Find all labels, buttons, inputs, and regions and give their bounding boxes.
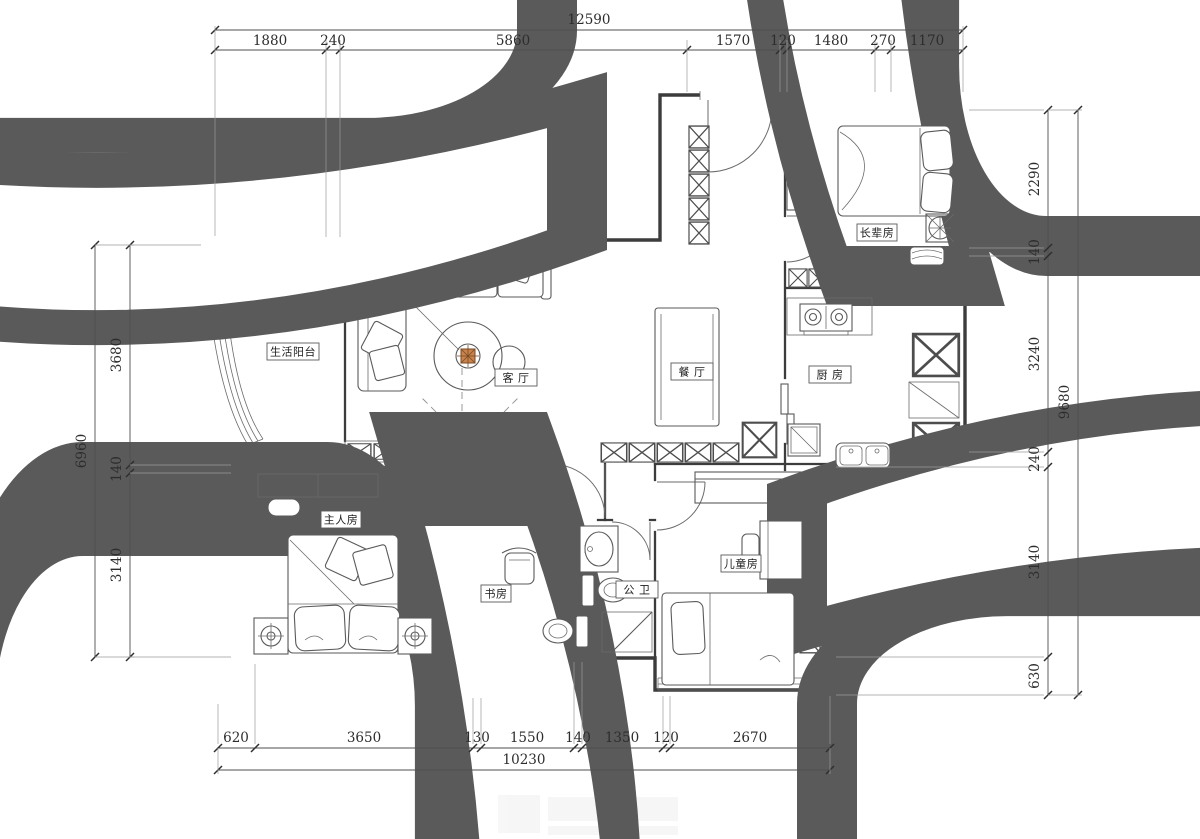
dim-value: 240	[1027, 446, 1043, 472]
dim-value: 1170	[910, 33, 944, 49]
ceiling-fan-icon	[926, 214, 954, 242]
dim-right-total: 9680	[1057, 385, 1073, 419]
floor-plan-page: 生活阳台 客 厅 餐 厅 长辈房 厨 房 主人房 书房 公 卫 儿童房 1259…	[0, 0, 1200, 839]
dim-value: 3680	[109, 338, 125, 372]
dim-value: 140	[565, 730, 591, 746]
dim-bottom-total: 10230	[503, 752, 546, 768]
label-study: 书房	[485, 588, 508, 601]
dim-value: 1350	[605, 730, 639, 746]
floor-plan-canvas: 生活阳台 客 厅 餐 厅 长辈房 厨 房 主人房 书房 公 卫 儿童房 1259…	[0, 0, 1200, 839]
dim-value: 270	[870, 33, 896, 49]
dim-left-total: 6960	[74, 434, 90, 468]
label-elders: 长辈房	[860, 226, 895, 240]
dim-value: 620	[223, 730, 249, 746]
dim-value: 2290	[1027, 162, 1043, 196]
elders-bed	[838, 126, 954, 216]
dim-value: 5860	[496, 33, 530, 49]
label-master: 主人房	[324, 514, 359, 527]
label-living: 客 厅	[503, 371, 530, 385]
master-bed	[288, 535, 400, 653]
dim-top-total: 12590	[568, 12, 611, 28]
label-kids: 儿童房	[724, 557, 759, 571]
bench-icon	[910, 247, 944, 265]
watermark	[498, 795, 678, 835]
vanity-sink-icon	[580, 526, 618, 572]
label-bath: 公 卫	[624, 584, 651, 597]
dim-value: 1880	[253, 33, 287, 49]
dim-value: 120	[653, 730, 679, 746]
dim-value: 1480	[814, 33, 848, 49]
nightstand-left	[254, 618, 288, 654]
label-kitchen: 厨 房	[817, 369, 844, 382]
dim-value: 140	[109, 456, 125, 482]
nightstand-right	[398, 618, 432, 654]
dim-value: 240	[320, 33, 346, 49]
stove-icon	[800, 304, 852, 335]
dim-value: 630	[1027, 663, 1043, 689]
dim-value: 130	[464, 730, 490, 746]
dim-value: 2670	[733, 730, 767, 746]
dim-value: 120	[770, 33, 796, 49]
dim-value: 1550	[510, 730, 544, 746]
dim-value: 140	[1027, 239, 1043, 265]
dim-value: 3140	[109, 548, 125, 582]
dim-value: 3240	[1027, 337, 1043, 371]
fridge-icon	[788, 424, 820, 456]
dim-value: 3140	[1027, 545, 1043, 579]
label-balcony: 生活阳台	[270, 345, 316, 359]
dim-value: 1570	[716, 33, 750, 49]
label-dining: 餐 厅	[679, 365, 706, 379]
dim-value: 3650	[347, 730, 381, 746]
kids-bed	[662, 593, 794, 685]
